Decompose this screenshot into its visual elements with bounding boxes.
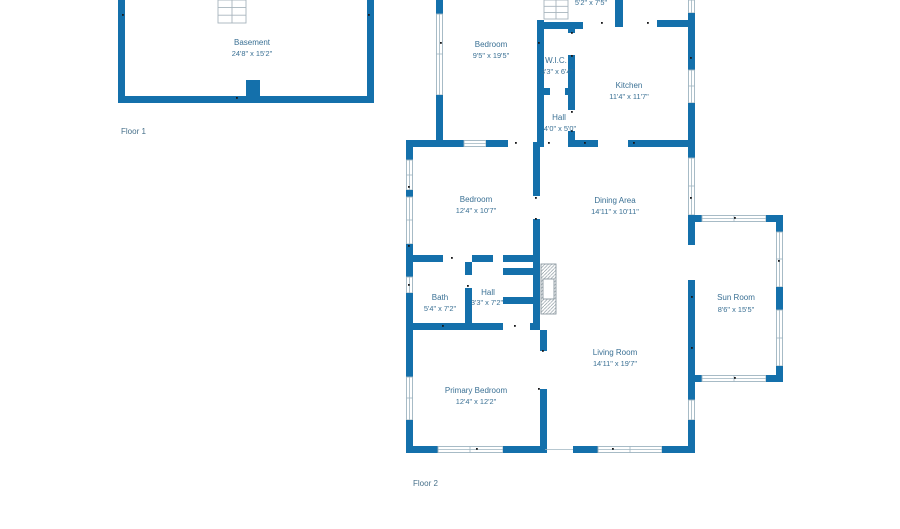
window-icon [689,400,695,420]
primary-bedroom-dims: 12'4" x 12'2" [456,397,497,406]
bedroom-upper-dims: 9'5" x 19'5" [473,51,510,60]
window-icon [464,141,486,147]
kitchen-dims: 11'4" x 11'7" [609,92,649,101]
hall-lower-dims: 3'3" x 7'2" [471,298,504,307]
floor1-plan: Basement 24'8" x 15'2" [118,0,374,103]
top-partial-room-dims: 5'2" x 7'5" [575,0,608,7]
bath-dims: 5'4" x 7'2" [424,304,457,313]
living-room-name: Living Room [593,348,638,357]
dining-area-name: Dining Area [594,196,636,205]
hall-upper-dims: 4'0" x 5'0" [544,124,577,133]
window-icon [688,70,695,103]
window-icon [406,377,413,420]
floor2-plan: 5'2" x 7'5" Bedroom 9'5" x 19'5" W.I.C. … [406,0,783,453]
hall-lower-name: Hall [481,288,495,297]
stairs-icon-lower [541,264,556,314]
window-icon [598,446,662,453]
window-icon [689,0,695,13]
floor2-label: Floor 2 [413,479,438,488]
basement-wall-stub [246,80,260,97]
living-room-dims: 14'11" x 19'7" [593,359,637,368]
basement-room-name: Basement [234,38,271,47]
window-icon [776,232,783,287]
floor1-label: Floor 1 [121,127,146,136]
window-icon [688,158,695,215]
floor-plan-drawing: Basement 24'8" x 15'2" Floor 1 [0,0,900,529]
bath-name: Bath [432,293,448,302]
window-icon [406,160,413,190]
stairs-icon-basement [218,0,246,23]
window-icon [436,14,443,95]
bedroom-mid-name: Bedroom [460,195,493,204]
basement-room-dims: 24'8" x 15'2" [232,49,273,58]
primary-bedroom-name: Primary Bedroom [445,386,508,395]
hall-upper-name: Hall [552,113,566,122]
bedroom-upper-name: Bedroom [475,40,508,49]
sun-room-name: Sun Room [717,293,755,302]
wic-name: W.I.C. [545,56,567,65]
window-icon [776,310,783,366]
dining-area-dims: 14'11" x 10'11" [591,207,639,216]
window-icon [406,197,413,244]
window-icon [438,446,503,453]
sun-room-dims: 8'6" x 15'5" [718,305,755,314]
floor-plan-canvas: Basement 24'8" x 15'2" Floor 1 [0,0,900,529]
stairs-icon-upper [544,0,568,19]
bedroom-mid-dims: 12'4" x 10'7" [456,206,497,215]
wic-dims: 3'3" x 6'4" [541,67,574,76]
kitchen-name: Kitchen [616,81,643,90]
